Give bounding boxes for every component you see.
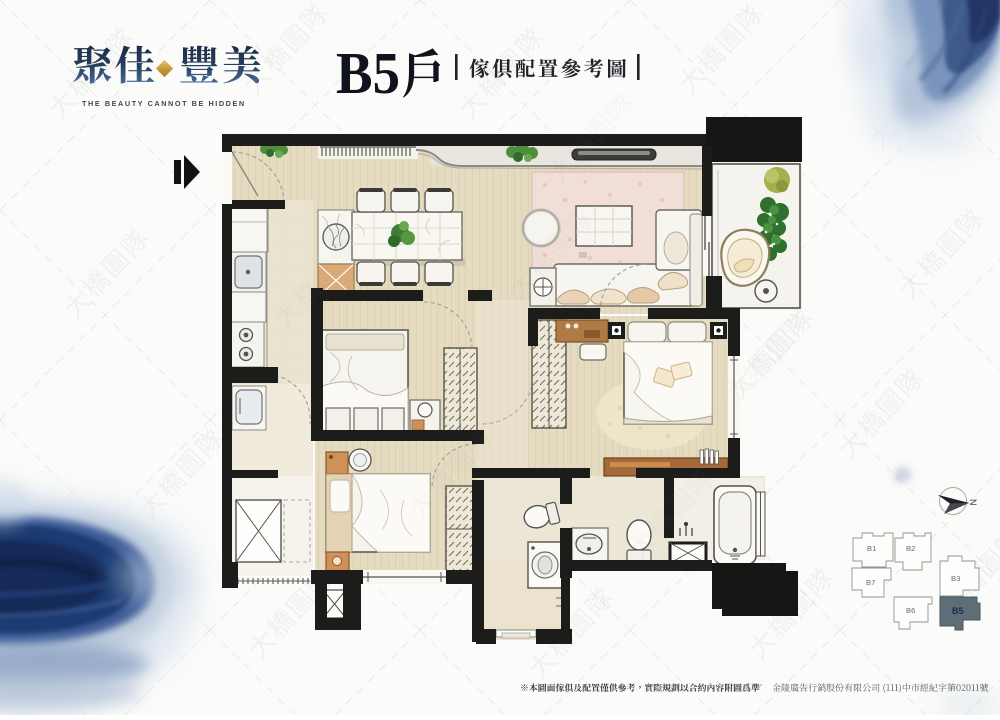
- svg-text:B2: B2: [906, 544, 915, 553]
- svg-text:B1: B1: [867, 544, 876, 553]
- svg-text:B5: B5: [336, 41, 400, 106]
- svg-text:B5: B5: [952, 606, 964, 616]
- svg-text:THE BEAUTY CANNOT BE HIDDEN: THE BEAUTY CANNOT BE HIDDEN: [82, 99, 246, 108]
- svg-text:N: N: [968, 499, 978, 506]
- svg-text:B3: B3: [951, 574, 960, 583]
- svg-text:B6: B6: [906, 606, 915, 615]
- svg-text:B7: B7: [866, 578, 875, 587]
